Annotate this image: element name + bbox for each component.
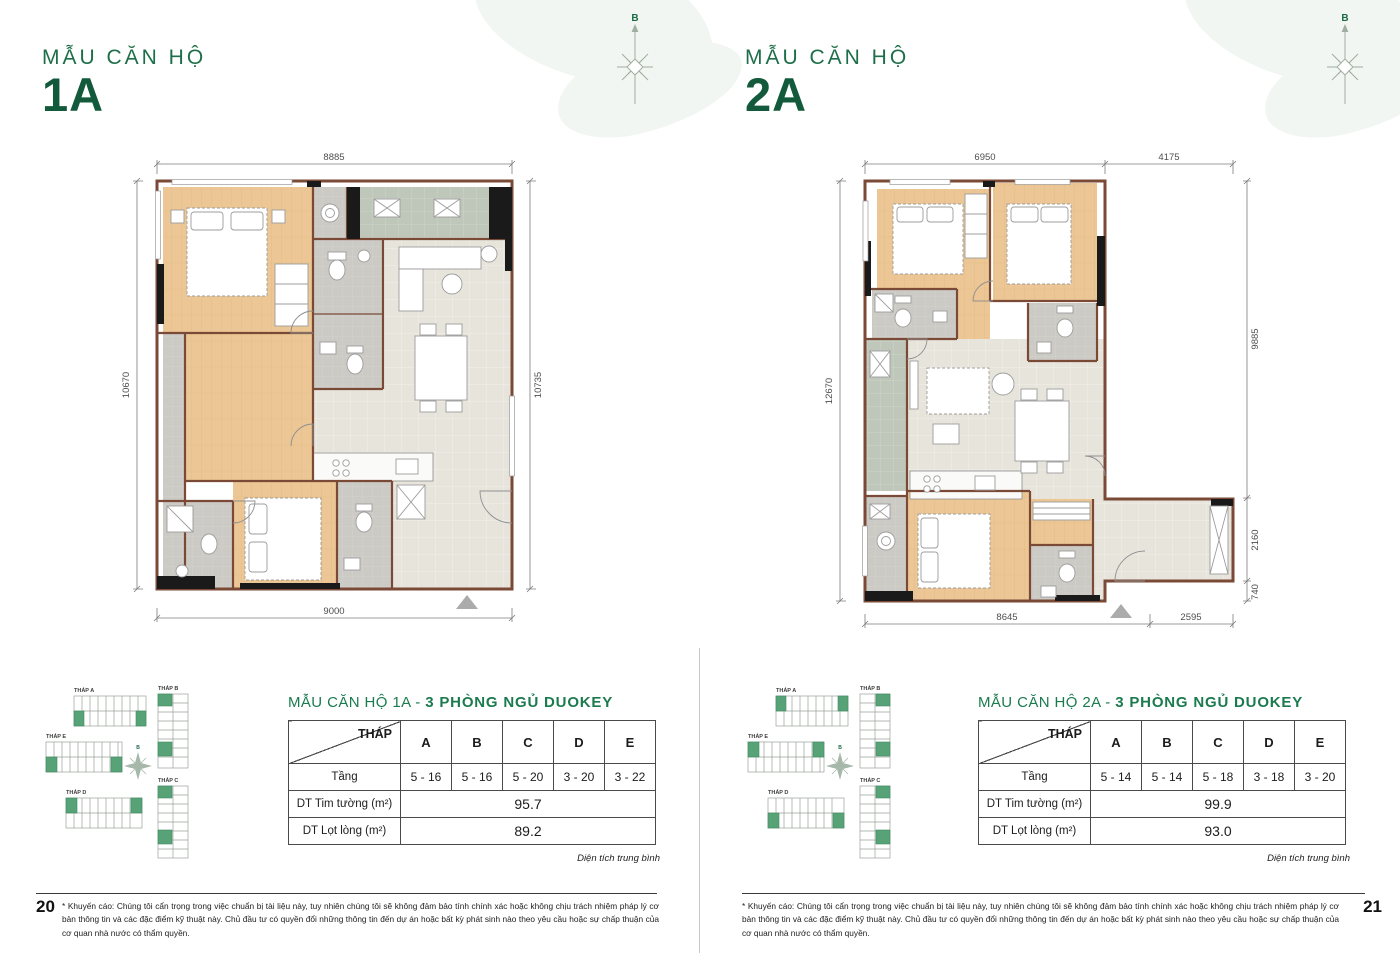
table-row-label: Tầng bbox=[979, 764, 1091, 791]
coffee-table bbox=[442, 274, 462, 294]
corner-label: THÁP bbox=[358, 727, 392, 741]
dimension-label: 12670 bbox=[824, 378, 835, 404]
entrance-arrow bbox=[456, 595, 478, 609]
toilet bbox=[328, 252, 346, 280]
compass-north-label: B bbox=[1341, 13, 1348, 24]
table-cell: 5 - 16 bbox=[401, 764, 452, 791]
page-number: 20 bbox=[36, 897, 55, 917]
mini-compass-icon: B bbox=[124, 745, 152, 780]
tower-label: THÁP D bbox=[768, 789, 788, 796]
table-cell: 3 - 18 bbox=[1244, 764, 1295, 791]
table-cell: 3 - 22 bbox=[605, 764, 656, 791]
bathroom-bottom bbox=[337, 481, 392, 589]
dining-table bbox=[415, 324, 467, 412]
sink bbox=[344, 558, 360, 570]
svg-text:B: B bbox=[136, 745, 140, 751]
table-corner-cell: THÁP bbox=[289, 721, 401, 764]
tower-label: THÁP B bbox=[860, 685, 880, 692]
table-corner-cell: THÁP bbox=[979, 721, 1091, 764]
storage-cabinet bbox=[1210, 506, 1228, 574]
sink bbox=[933, 311, 947, 322]
disclaimer-text: * Khuyến cáo: Chúng tôi cẩn trọng trong … bbox=[62, 900, 659, 940]
dimension-label: 10670 bbox=[121, 372, 132, 398]
table-cell: 5 - 14 bbox=[1091, 764, 1142, 791]
footer-rule bbox=[36, 893, 657, 894]
table-col-header: C bbox=[1193, 721, 1244, 764]
spec-table-block-1a: MẪU CĂN HỘ 1A - 3 PHÒNG NGỦ DUOKEY THÁP … bbox=[288, 694, 660, 864]
table-col-header: C bbox=[503, 721, 554, 764]
bed bbox=[918, 514, 990, 588]
dimension-label: 10735 bbox=[533, 372, 544, 398]
table-col-header: D bbox=[554, 721, 605, 764]
table-cell: 5 - 16 bbox=[452, 764, 503, 791]
bed bbox=[893, 204, 963, 274]
svg-text:B: B bbox=[838, 745, 842, 751]
floor-plan-2a: 6950 4175 12670 9885 2160 740 8645 2595 bbox=[815, 146, 1265, 636]
dimension-label: 6950 bbox=[974, 152, 995, 163]
ac-unit bbox=[870, 351, 890, 377]
dimension-label: 740 bbox=[1250, 584, 1261, 600]
shoe-cabinet bbox=[397, 485, 425, 519]
table-col-header: E bbox=[1295, 721, 1346, 764]
area-note: Diện tích trung bình bbox=[978, 853, 1350, 864]
table-col-header: B bbox=[452, 721, 503, 764]
dimension-label: 2160 bbox=[1250, 529, 1261, 550]
brochure-spread: MẪU CĂN HỘ 1A B bbox=[0, 0, 1400, 953]
table-row-label: DT Lọt lòng (m²) bbox=[979, 818, 1091, 845]
sink bbox=[176, 565, 188, 577]
ac-unit bbox=[870, 504, 890, 519]
dining-table bbox=[1015, 389, 1069, 473]
compass-icon: B bbox=[612, 10, 658, 112]
bed bbox=[1007, 204, 1071, 284]
tower-label: THÁP E bbox=[46, 733, 66, 740]
page-header-1a: MẪU CĂN HỘ 1A bbox=[42, 46, 206, 119]
dimension-label: 8885 bbox=[323, 152, 344, 163]
table-cell: 5 - 14 bbox=[1142, 764, 1193, 791]
table-cell-merged: 99.9 bbox=[1091, 791, 1346, 818]
table-row-label: DT Tim tường (m²) bbox=[289, 791, 401, 818]
compass-north-label: B bbox=[631, 13, 638, 24]
table-cell-merged: 89.2 bbox=[401, 818, 656, 845]
dimension-label: 9885 bbox=[1250, 328, 1261, 349]
wardrobe bbox=[275, 264, 308, 326]
footer-rule bbox=[742, 893, 1365, 894]
shower bbox=[167, 506, 193, 532]
bedroom-2 bbox=[185, 333, 313, 481]
table-col-header: A bbox=[401, 721, 452, 764]
table-cell: 3 - 20 bbox=[554, 764, 605, 791]
dimension-label: 9000 bbox=[323, 606, 344, 617]
table-title-plain: MẪU CĂN HỘ 2A - bbox=[978, 694, 1115, 711]
spec-table-block-2a: MẪU CĂN HỘ 2A - 3 PHÒNG NGỦ DUOKEY THÁP … bbox=[978, 694, 1350, 864]
kitchen-sink bbox=[396, 459, 418, 474]
wardrobe bbox=[965, 194, 987, 258]
table-title-bold: 3 PHÒNG NGỦ DUOKEY bbox=[425, 694, 613, 711]
table-title: MẪU CĂN HỘ 2A - 3 PHÒNG NGỦ DUOKEY bbox=[978, 694, 1350, 711]
page-header-2a: MẪU CĂN HỘ 2A bbox=[745, 46, 909, 119]
site-keyplan: THÁP A THÁP B THÁP E THÁP C THÁP D B bbox=[732, 680, 937, 865]
page-title-big: 2A bbox=[745, 70, 909, 119]
floor-plan-1a: 8885 10670 10735 9000 bbox=[112, 146, 562, 636]
page-number: 21 bbox=[1348, 897, 1382, 917]
dimension-label: 8645 bbox=[996, 612, 1017, 623]
dimension-label: 2595 bbox=[1180, 612, 1201, 623]
disclaimer-text: * Khuyến cáo: Chúng tôi cẩn trọng trong … bbox=[742, 900, 1339, 940]
area-note: Diện tích trung bình bbox=[288, 853, 660, 864]
kitchen-sink bbox=[975, 476, 995, 490]
tv-cabinet bbox=[910, 361, 918, 409]
bed bbox=[245, 498, 321, 580]
table-cell: 5 - 20 bbox=[503, 764, 554, 791]
page-title-small: MẪU CĂN HỘ bbox=[42, 46, 206, 70]
table-row-label: DT Lọt lòng (m²) bbox=[289, 818, 401, 845]
tower-label: THÁP A bbox=[74, 687, 94, 694]
mini-compass-icon: B bbox=[826, 745, 854, 780]
balcony-left bbox=[163, 333, 185, 501]
table-col-header: D bbox=[1244, 721, 1295, 764]
tower-label: THÁP D bbox=[66, 789, 86, 796]
washing-machine bbox=[877, 532, 895, 550]
table-cell-merged: 93.0 bbox=[1091, 818, 1346, 845]
table-cell: 3 - 20 bbox=[1295, 764, 1346, 791]
table-cell: 5 - 18 bbox=[1193, 764, 1244, 791]
wardrobe bbox=[1033, 502, 1090, 520]
table-title: MẪU CĂN HỘ 1A - 3 PHÒNG NGỦ DUOKEY bbox=[288, 694, 660, 711]
sink bbox=[1041, 586, 1056, 597]
balcony-top bbox=[347, 187, 512, 239]
page-title-big: 1A bbox=[42, 70, 206, 119]
toilet bbox=[347, 346, 363, 374]
tower-label: THÁP A bbox=[776, 687, 796, 694]
sink bbox=[320, 342, 336, 354]
table-cell-merged: 95.7 bbox=[401, 791, 656, 818]
tower-label: THÁP C bbox=[860, 777, 880, 784]
page-title-small: MẪU CĂN HỘ bbox=[745, 46, 909, 70]
shower bbox=[875, 294, 893, 312]
site-keyplan: THÁP A THÁP B THÁP E THÁP C THÁP D B bbox=[30, 680, 235, 865]
unit-spec-table: THÁP A B C D E Tầng 5 - 16 5 - 16 5 - 20… bbox=[288, 720, 656, 845]
tower-label: THÁP B bbox=[158, 685, 178, 692]
table-col-header: B bbox=[1142, 721, 1193, 764]
table-row-label: DT Tim tường (m²) bbox=[979, 791, 1091, 818]
page-divider bbox=[699, 648, 700, 953]
table-title-bold: 3 PHÒNG NGỦ DUOKEY bbox=[1115, 694, 1303, 711]
washing-machine bbox=[321, 204, 339, 222]
kitchen-counter bbox=[910, 471, 1022, 499]
sink bbox=[358, 250, 370, 262]
toilet bbox=[895, 296, 911, 327]
unit-spec-table: THÁP A B C D E Tầng 5 - 14 5 - 14 5 - 18… bbox=[978, 720, 1346, 845]
tower-label: THÁP E bbox=[748, 733, 768, 740]
corner-label: THÁP bbox=[1048, 727, 1082, 741]
entrance-arrow bbox=[1110, 604, 1132, 618]
tower-label: THÁP C bbox=[158, 777, 178, 784]
table-title-plain: MẪU CĂN HỘ 1A - bbox=[288, 694, 425, 711]
table-col-header: E bbox=[605, 721, 656, 764]
table-row-label: Tầng bbox=[289, 764, 401, 791]
compass-icon: B bbox=[1322, 10, 1368, 112]
dimension-label: 4175 bbox=[1158, 152, 1179, 163]
table-col-header: A bbox=[1091, 721, 1142, 764]
coffee-table bbox=[992, 373, 1014, 395]
sink bbox=[1037, 342, 1051, 353]
toilet bbox=[1057, 306, 1073, 337]
